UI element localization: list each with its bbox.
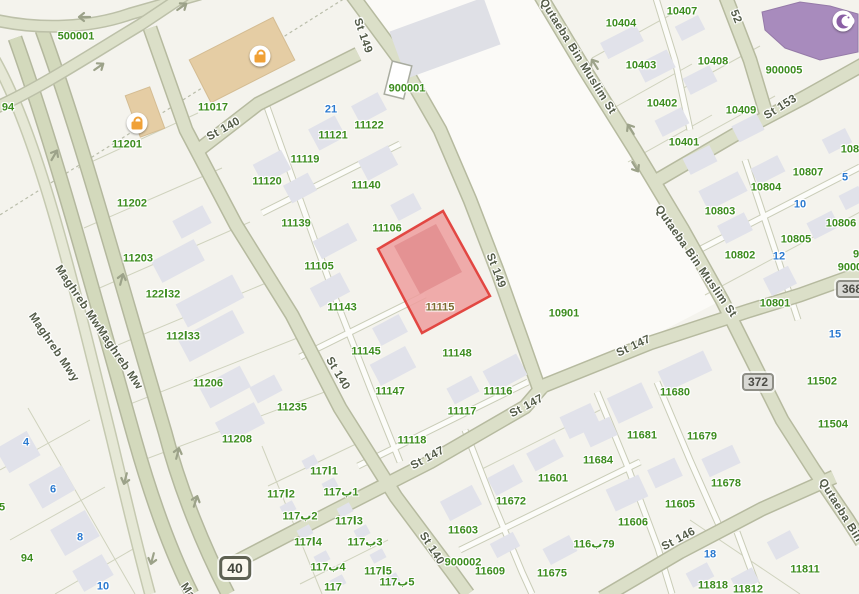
selected-parcel-11115[interactable] — [378, 211, 490, 333]
utility-structure — [384, 61, 412, 99]
map-graphics — [0, 0, 859, 594]
mosque-building — [762, 2, 858, 60]
map-canvas[interactable]: St 140St 149Qutaeba Bin Muslim StSt 1535… — [0, 0, 859, 594]
retail-building — [125, 87, 164, 137]
